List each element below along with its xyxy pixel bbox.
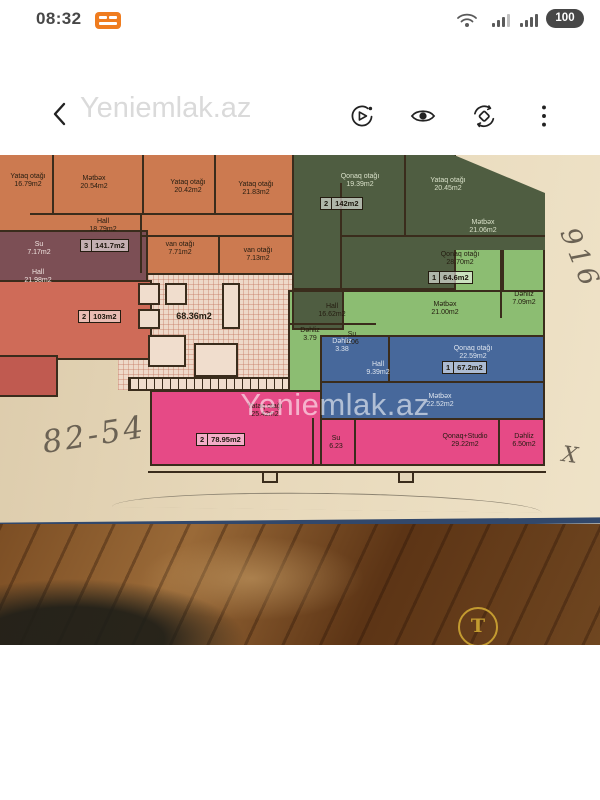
elevator-shaft [148, 335, 186, 367]
balcony-step [398, 471, 414, 483]
common-area-label: 68.36m2 [152, 311, 236, 321]
header-bar: Yeniemlak.az [0, 40, 600, 110]
balcony-step [262, 471, 278, 483]
room-label: Dəhliz7.09m2 [503, 291, 545, 307]
handwriting-right: 916 [553, 223, 600, 294]
signal-icon-2 [520, 14, 538, 27]
scan-text-badge[interactable]: T [458, 607, 498, 645]
signal-icon-1 [492, 14, 510, 27]
android-navbar [0, 762, 600, 800]
room-label: van otağı7.13m2 [226, 247, 290, 263]
unit-badge-orange: 3141.7m2 [80, 239, 129, 252]
room-label: Hall16.62m2 [300, 303, 364, 319]
clock: 08:32 [36, 9, 81, 29]
plan-box [138, 283, 160, 305]
room-label: Dəhliz3.38 [322, 338, 362, 354]
image-watermark: Yeniemlak.az [175, 387, 495, 423]
motion-photo-button[interactable] [346, 100, 378, 132]
room-label: Yataq otağı21.83m2 [222, 181, 290, 197]
ar-rotate-icon [470, 102, 498, 130]
unit-badge-pink: 278.95m2 [196, 433, 245, 446]
room-label: Mətbəx21.00m2 [406, 301, 484, 317]
handwriting-bottom-left: 82-54 [40, 409, 149, 461]
room-label: Hall21.98m2 [6, 269, 70, 285]
elevator-shaft [194, 343, 238, 377]
room-label: Qonaq otağı28.70m2 [416, 251, 504, 267]
room-label: Dəhliz6.50m2 [502, 433, 546, 449]
room-label: Hall9.39m2 [350, 361, 406, 377]
eye-icon [409, 102, 437, 130]
notification-badge-icon [95, 12, 121, 29]
thumbnail-strip: ▶ [0, 656, 600, 712]
app-watermark: Yeniemlak.az [80, 92, 251, 125]
plan-box [222, 283, 240, 329]
unit-badge-darkgreen: 2142m2 [320, 197, 363, 210]
room-label: Qonaq otağı22.59m2 [428, 345, 518, 361]
room-label: Su7.17m2 [12, 241, 66, 257]
room-label: Yataq otağı20.45m2 [412, 177, 484, 193]
room-label: Yataq otağı16.79m2 [0, 173, 56, 189]
wood-floor-background [0, 524, 600, 645]
room-label: van otağı7.71m2 [148, 241, 212, 257]
bottom-toolbar: Yeniemlak.az [0, 712, 600, 762]
status-bar: 08:32 100 [0, 0, 600, 40]
room-label: Mətbəx20.54m2 [58, 175, 130, 191]
pencil-line [112, 490, 542, 513]
back-button[interactable] [44, 98, 76, 130]
more-options-icon [531, 102, 557, 130]
room-label: Mətbəx21.06m2 [448, 219, 518, 235]
more-options-button[interactable] [528, 100, 560, 132]
show-eye-button[interactable] [407, 100, 439, 132]
room-label: Hall18.79m2 [68, 218, 138, 234]
gallery-app-screen: 08:32 100 Yeniemlak.az [0, 0, 600, 800]
motion-photo-icon [348, 102, 376, 130]
plan-box [165, 283, 187, 305]
wifi-icon [456, 11, 478, 29]
room-label: Yataq otağı20.42m2 [150, 179, 226, 195]
back-icon [49, 100, 71, 128]
photo-viewer-floorplan[interactable]: Yataq otağı16.79m2 Mətbəx20.54m2 Yataq o… [0, 155, 600, 645]
unit-badge-blue: 167.2m2 [442, 361, 487, 374]
room-label: Su6.23 [316, 435, 356, 451]
room-label: Qonaq otağı19.39m2 [322, 173, 398, 189]
ar-rotate-button[interactable] [468, 100, 500, 132]
unit-badge-red: 2103m2 [78, 310, 121, 323]
battery-badge: 100 [546, 9, 584, 28]
plan-section-red [0, 280, 152, 360]
handwriting-x-mark: X [560, 442, 579, 469]
plan-section-red-lower [0, 355, 58, 397]
unit-badge-lightgreen: 164.6m2 [428, 271, 473, 284]
room-label: Qonaq+Studio29.22m2 [420, 433, 510, 449]
